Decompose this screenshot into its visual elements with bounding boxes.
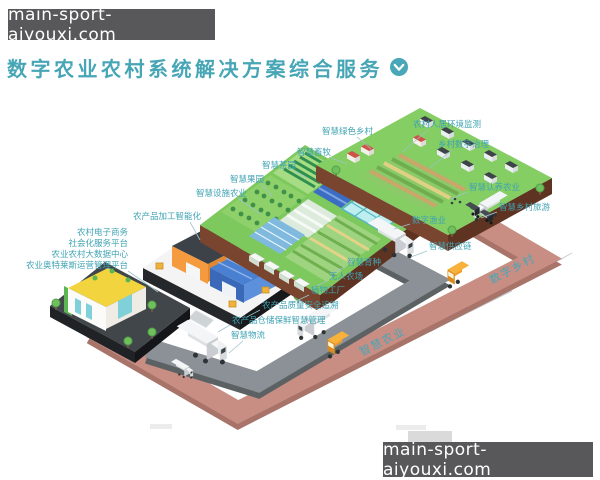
label-smart-green-village: 智慧绿色乡村	[322, 126, 374, 137]
label-storage-preservation-management: 农产品仓储保鲜智慧管理	[232, 315, 326, 326]
screenshot-root: 农村人居环境监测 乡村数字治理 智慧绿色乡村 智慧畜牧 智慧茶园 智慧果园 智慧…	[0, 0, 600, 480]
chevron-down-icon[interactable]	[389, 57, 409, 77]
watermark-bottom-right: main-sport-aiyouxi.com	[383, 442, 593, 477]
label-plant-factory: 植物工厂	[311, 285, 345, 296]
label-agri-outlets-operation-platform: 农业奥特莱斯运营管理平台	[26, 260, 128, 271]
title-row: 数字农业农村系统解决方案综合服务	[7, 52, 597, 82]
label-smart-tea-garden: 智慧茶园	[262, 160, 296, 171]
watermark-top-left: main-sport-aiyouxi.com	[8, 9, 215, 40]
label-smart-supply-chain: 智慧供应链	[429, 241, 472, 252]
label-agri-product-processing: 农产品加工智能化	[133, 211, 202, 222]
label-rural-env-monitoring: 农村人居环境监测	[413, 119, 481, 130]
label-smart-adoption-agriculture: 智慧认养农业	[469, 182, 520, 193]
label-digital-fishery: 数字渔业	[412, 215, 446, 226]
label-smart-orchard: 智慧果园	[230, 174, 264, 185]
label-unmanned-farm: 无人农场	[329, 271, 363, 282]
label-smart-logistics: 智慧物流	[231, 330, 266, 341]
label-smart-livestock: 智慧畜牧	[297, 147, 332, 158]
label-village-digital-governance: 乡村数字治理	[438, 139, 490, 150]
label-smart-breeding: 智慧育种	[347, 257, 381, 268]
label-smart-village-tourism: 智慧乡村旅游	[499, 202, 551, 213]
label-smart-facility-agriculture: 智慧设施农业	[196, 188, 247, 199]
label-quality-safety-traceability: 农产品质量安全追溯	[262, 300, 339, 311]
page-title: 数字农业农村系统解决方案综合服务	[7, 53, 383, 82]
label-agri-rural-big-data-center: 农业农村大数据中心	[51, 249, 128, 260]
label-social-service-platform: 社会化服务平台	[68, 238, 128, 249]
label-rural-ecommerce: 农村电子商务	[77, 227, 129, 238]
